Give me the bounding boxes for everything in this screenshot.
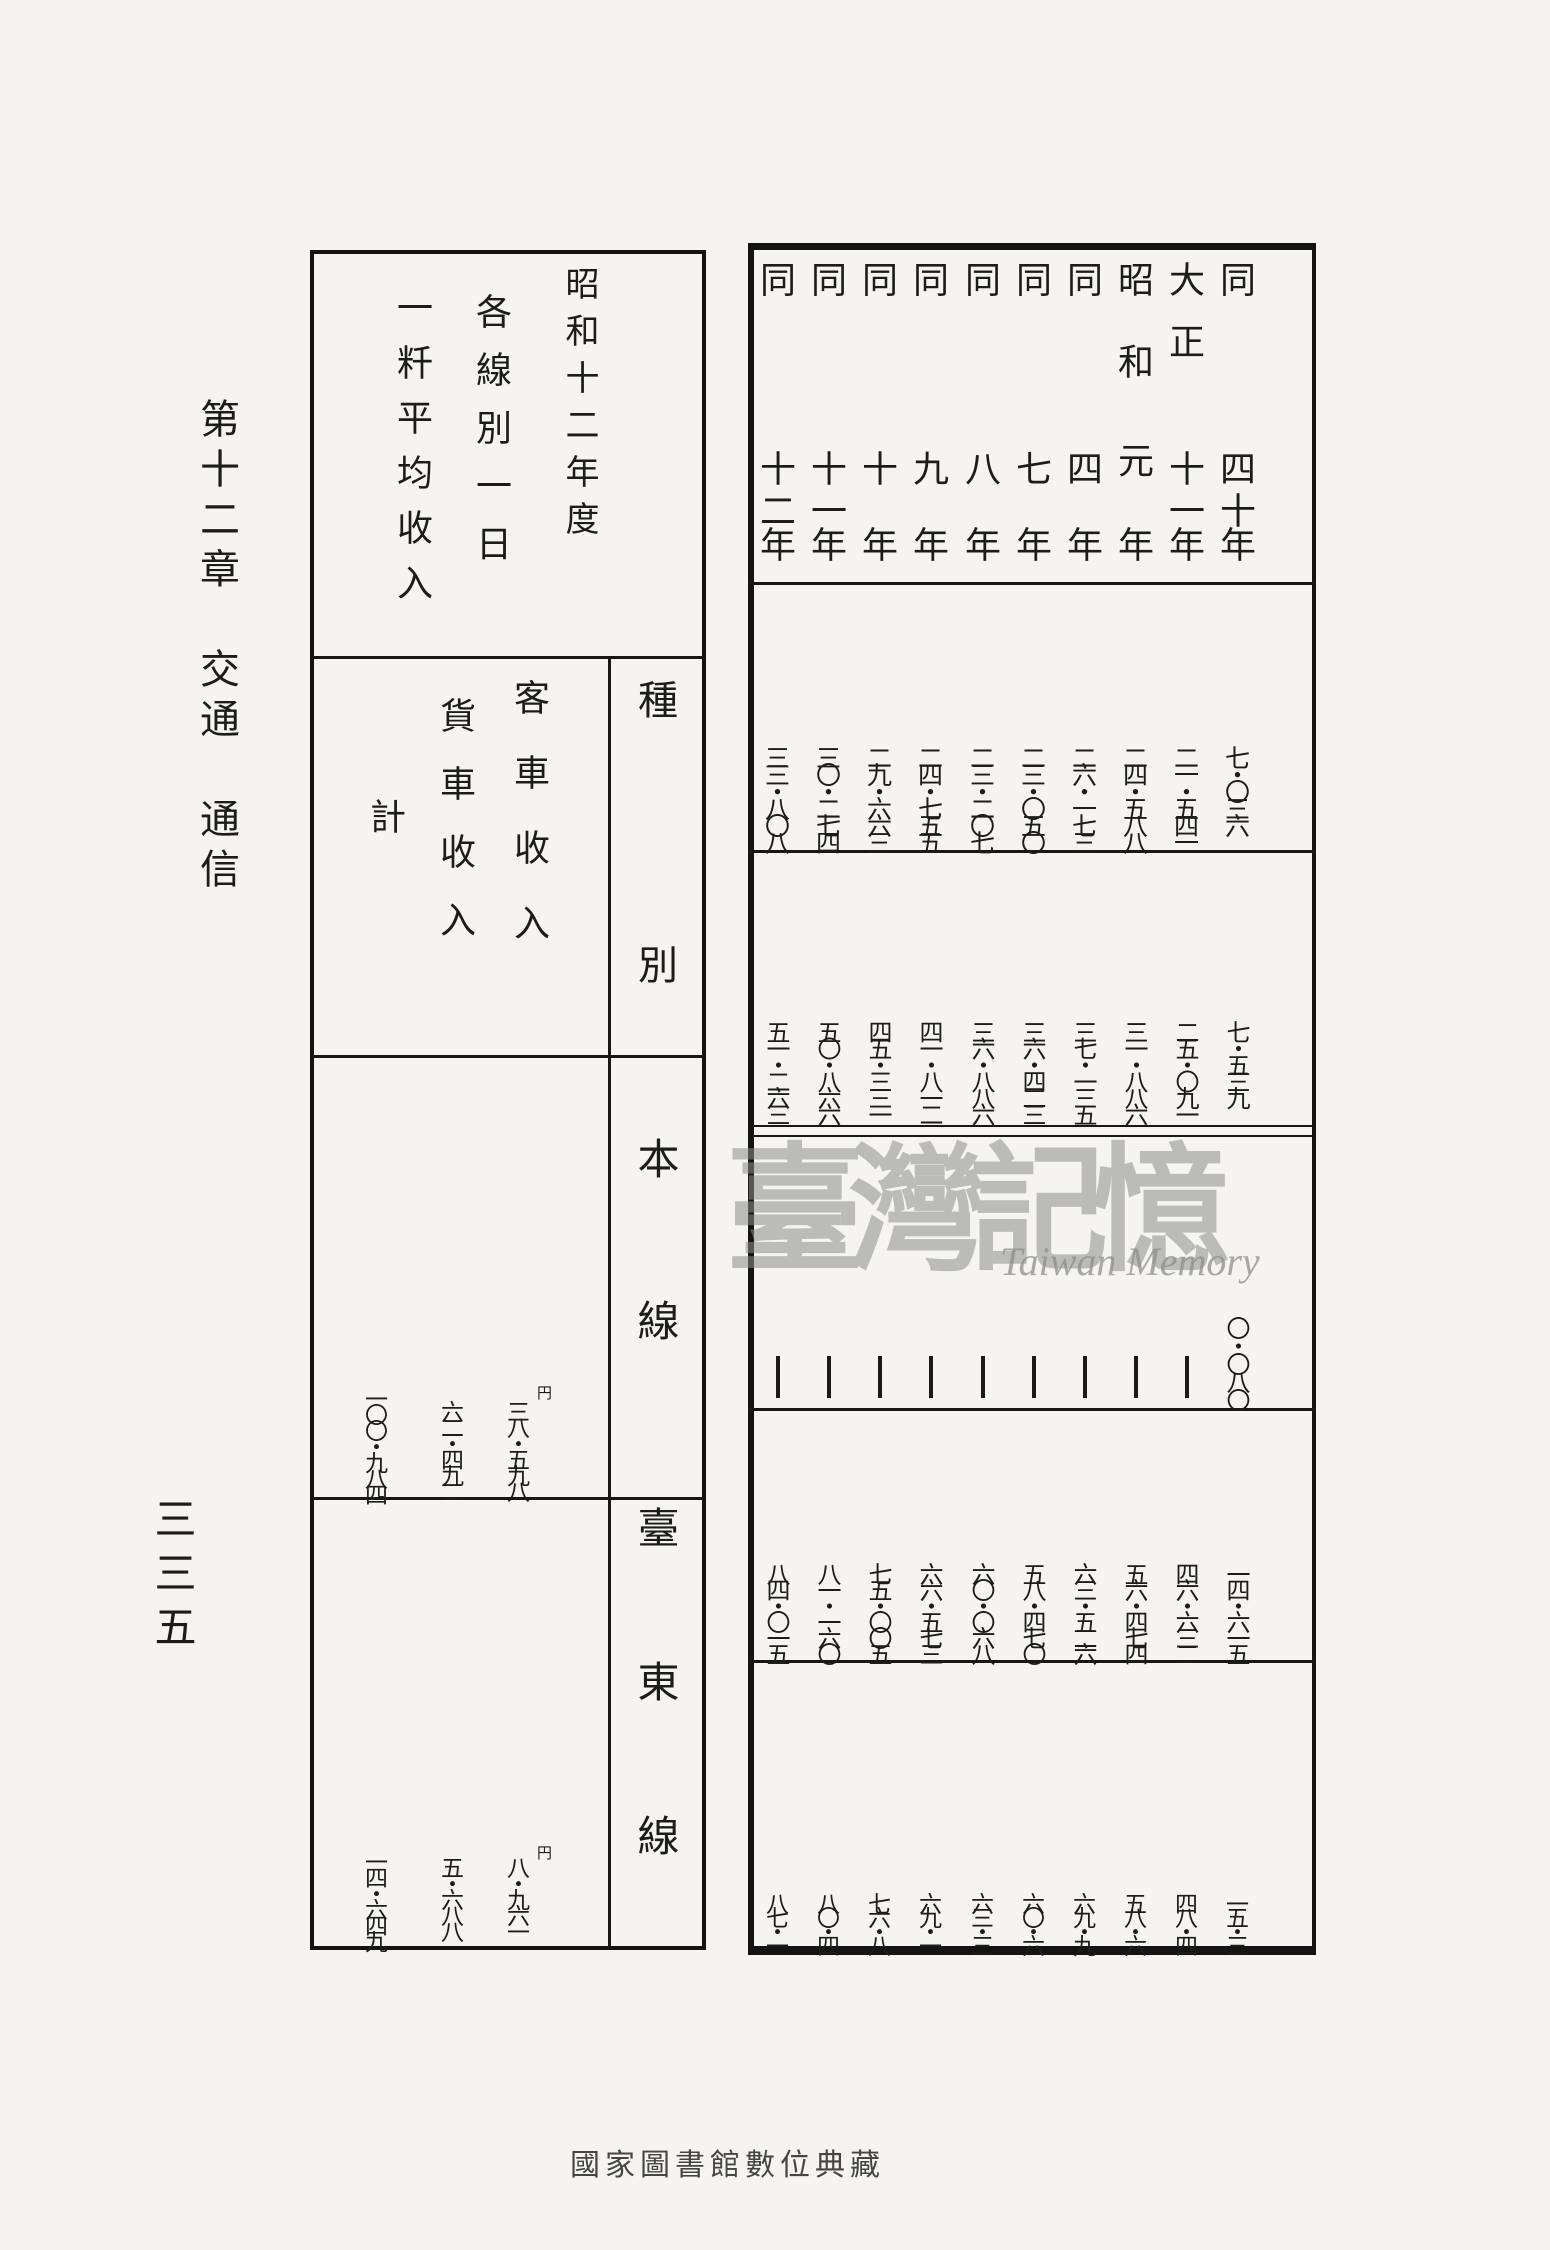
year-era-1: 大正 (1166, 261, 1202, 385)
year-num-6: 九 (910, 450, 946, 492)
measure-label-1: 貨車收入 (437, 697, 473, 969)
data-cell: 二四・七五五 (916, 745, 941, 847)
rule-line (748, 850, 1316, 853)
left-value-cell: 八・九六一 (505, 1856, 528, 1936)
year-suffix: 年 (1217, 526, 1253, 562)
left-table-title-2: 一粁平均收入 (394, 289, 430, 619)
dash-cell (776, 1356, 780, 1398)
unit-label: 円 (537, 1847, 552, 1862)
dash-cell (827, 1356, 831, 1398)
data-cell: 七・〇三六 (1223, 745, 1248, 830)
data-cell: 五八・六 (1122, 1892, 1145, 1948)
dash-cell (878, 1356, 882, 1398)
year-num-7: 十 (859, 450, 895, 492)
year-era-8: 同 (808, 261, 844, 297)
left-value-cell: 六二・四九二 (439, 1400, 462, 1496)
data-cell: 六〇・六 (1020, 1892, 1043, 1948)
year-era-9: 同 (757, 261, 793, 297)
data-cell: 八〇・四 (815, 1892, 838, 1948)
unit-label: 円 (537, 1387, 552, 1402)
data-cell: 二九・六六三 (865, 745, 890, 847)
data-cell: 一四・六一五 (1223, 1562, 1247, 1658)
year-era-6: 同 (910, 261, 946, 297)
year-suffix: 年 (1166, 526, 1202, 562)
data-cell: 〇・〇八〇 (1223, 1316, 1247, 1406)
dash-cell (1083, 1356, 1087, 1398)
data-cell: 六〇・〇六八 (968, 1562, 992, 1658)
data-cell: 五八・四七〇 (1019, 1562, 1043, 1658)
left-value-cell: 一四・六四九 (363, 1850, 386, 1946)
year-num-8: 十一 (808, 450, 844, 534)
page-number: 三三五 (150, 1497, 192, 1659)
data-cell: 二四・五八八 (1121, 745, 1146, 847)
year-num-9: 十二 (757, 450, 793, 534)
data-cell: 二六・一七三 (1070, 745, 1095, 847)
rule-line (748, 1660, 1316, 1663)
data-cell: 八四・〇一五 (763, 1562, 787, 1658)
year-num-0: 四十 (1217, 450, 1253, 534)
measure-label-2: 計 (367, 798, 403, 834)
year-era-5: 同 (962, 261, 998, 297)
data-cell: 二一・五四一 (1172, 745, 1197, 847)
year-suffix: 年 (962, 526, 998, 562)
scanned-page: 第十二章 交通 通信 三三五 臺灣記憶 Taiwan Memory 國家圖書館數… (0, 0, 1550, 2250)
rule-line (310, 656, 706, 659)
dash-cell (981, 1356, 985, 1398)
year-suffix: 年 (1115, 526, 1151, 562)
data-cell: 四六・六三二 (1172, 1562, 1196, 1658)
data-cell: 二三・〇五〇 (1019, 745, 1044, 847)
dash-cell (1134, 1356, 1138, 1398)
rule-line (608, 656, 611, 1950)
year-era-3: 同 (1064, 261, 1100, 297)
dash-cell (1032, 1356, 1036, 1398)
left-table-title-1: 各線別一日 (473, 293, 509, 583)
category-label-0: 本線 (633, 1137, 675, 1461)
year-suffix: 年 (757, 526, 793, 562)
category-header: 種別 (634, 679, 674, 1209)
measure-label-0: 客車收入 (511, 679, 547, 979)
data-cell: 七五・〇〇五 (865, 1562, 889, 1658)
year-num-5: 八 (962, 450, 998, 492)
year-num-4: 七 (1013, 450, 1049, 492)
watermark-latin-text: Taiwan Memory (1000, 1238, 1260, 1285)
data-cell: 六六・五七三 (916, 1562, 940, 1658)
dash-cell (1185, 1356, 1189, 1398)
category-label-1: 臺東線 (633, 1506, 675, 1968)
year-num-1: 十一 (1166, 450, 1202, 534)
year-suffix: 年 (910, 526, 946, 562)
year-num-3: 四 (1064, 450, 1100, 492)
left-value-cell: 五・六八八 (439, 1856, 462, 1936)
data-cell: 五六・四七四 (1121, 1562, 1145, 1658)
dash-cell (929, 1356, 933, 1398)
year-era-2: 昭和 (1115, 261, 1151, 425)
data-cell: 三三・八〇八 (763, 745, 788, 847)
chapter-margin-text: 第十二章 交通 通信 (196, 398, 236, 898)
year-era-4: 同 (1013, 261, 1049, 297)
data-cell: 四八・四 (1173, 1892, 1196, 1948)
year-era-7: 同 (859, 261, 895, 297)
year-suffix: 年 (859, 526, 895, 562)
data-cell: 六三・三 (969, 1892, 992, 1948)
year-suffix: 年 (808, 526, 844, 562)
year-era-0: 同 (1217, 261, 1253, 297)
rule-line (748, 582, 1316, 585)
data-cell: 六九・一 (917, 1892, 940, 1948)
data-cell: 七・五三九 (1223, 1020, 1247, 1103)
left-table-title-0: 昭和十二年度 (561, 266, 595, 548)
data-cell: 八一・一六〇 (814, 1562, 838, 1658)
year-suffix: 年 (1013, 526, 1049, 562)
data-cell: 六三・五二六 (1070, 1562, 1094, 1658)
data-cell: 二三・二〇七 (968, 745, 993, 847)
data-cell: 一五・三 (1224, 1892, 1247, 1948)
bottom-caption: 國家圖書館數位典藏 (570, 2140, 885, 2184)
left-value-cell: 三八・五九八 (505, 1400, 528, 1496)
data-cell: 三〇・二七四 (814, 745, 839, 847)
left-value-cell: 一〇〇・九八四 (363, 1387, 386, 1499)
data-cell: 七六・八 (866, 1892, 889, 1948)
year-suffix: 年 (1064, 526, 1100, 562)
data-cell: 八七・一 (764, 1892, 787, 1948)
year-num-2: 元 (1115, 442, 1151, 484)
data-cell: 六九・九 (1071, 1892, 1094, 1948)
rule-line (748, 1408, 1316, 1411)
